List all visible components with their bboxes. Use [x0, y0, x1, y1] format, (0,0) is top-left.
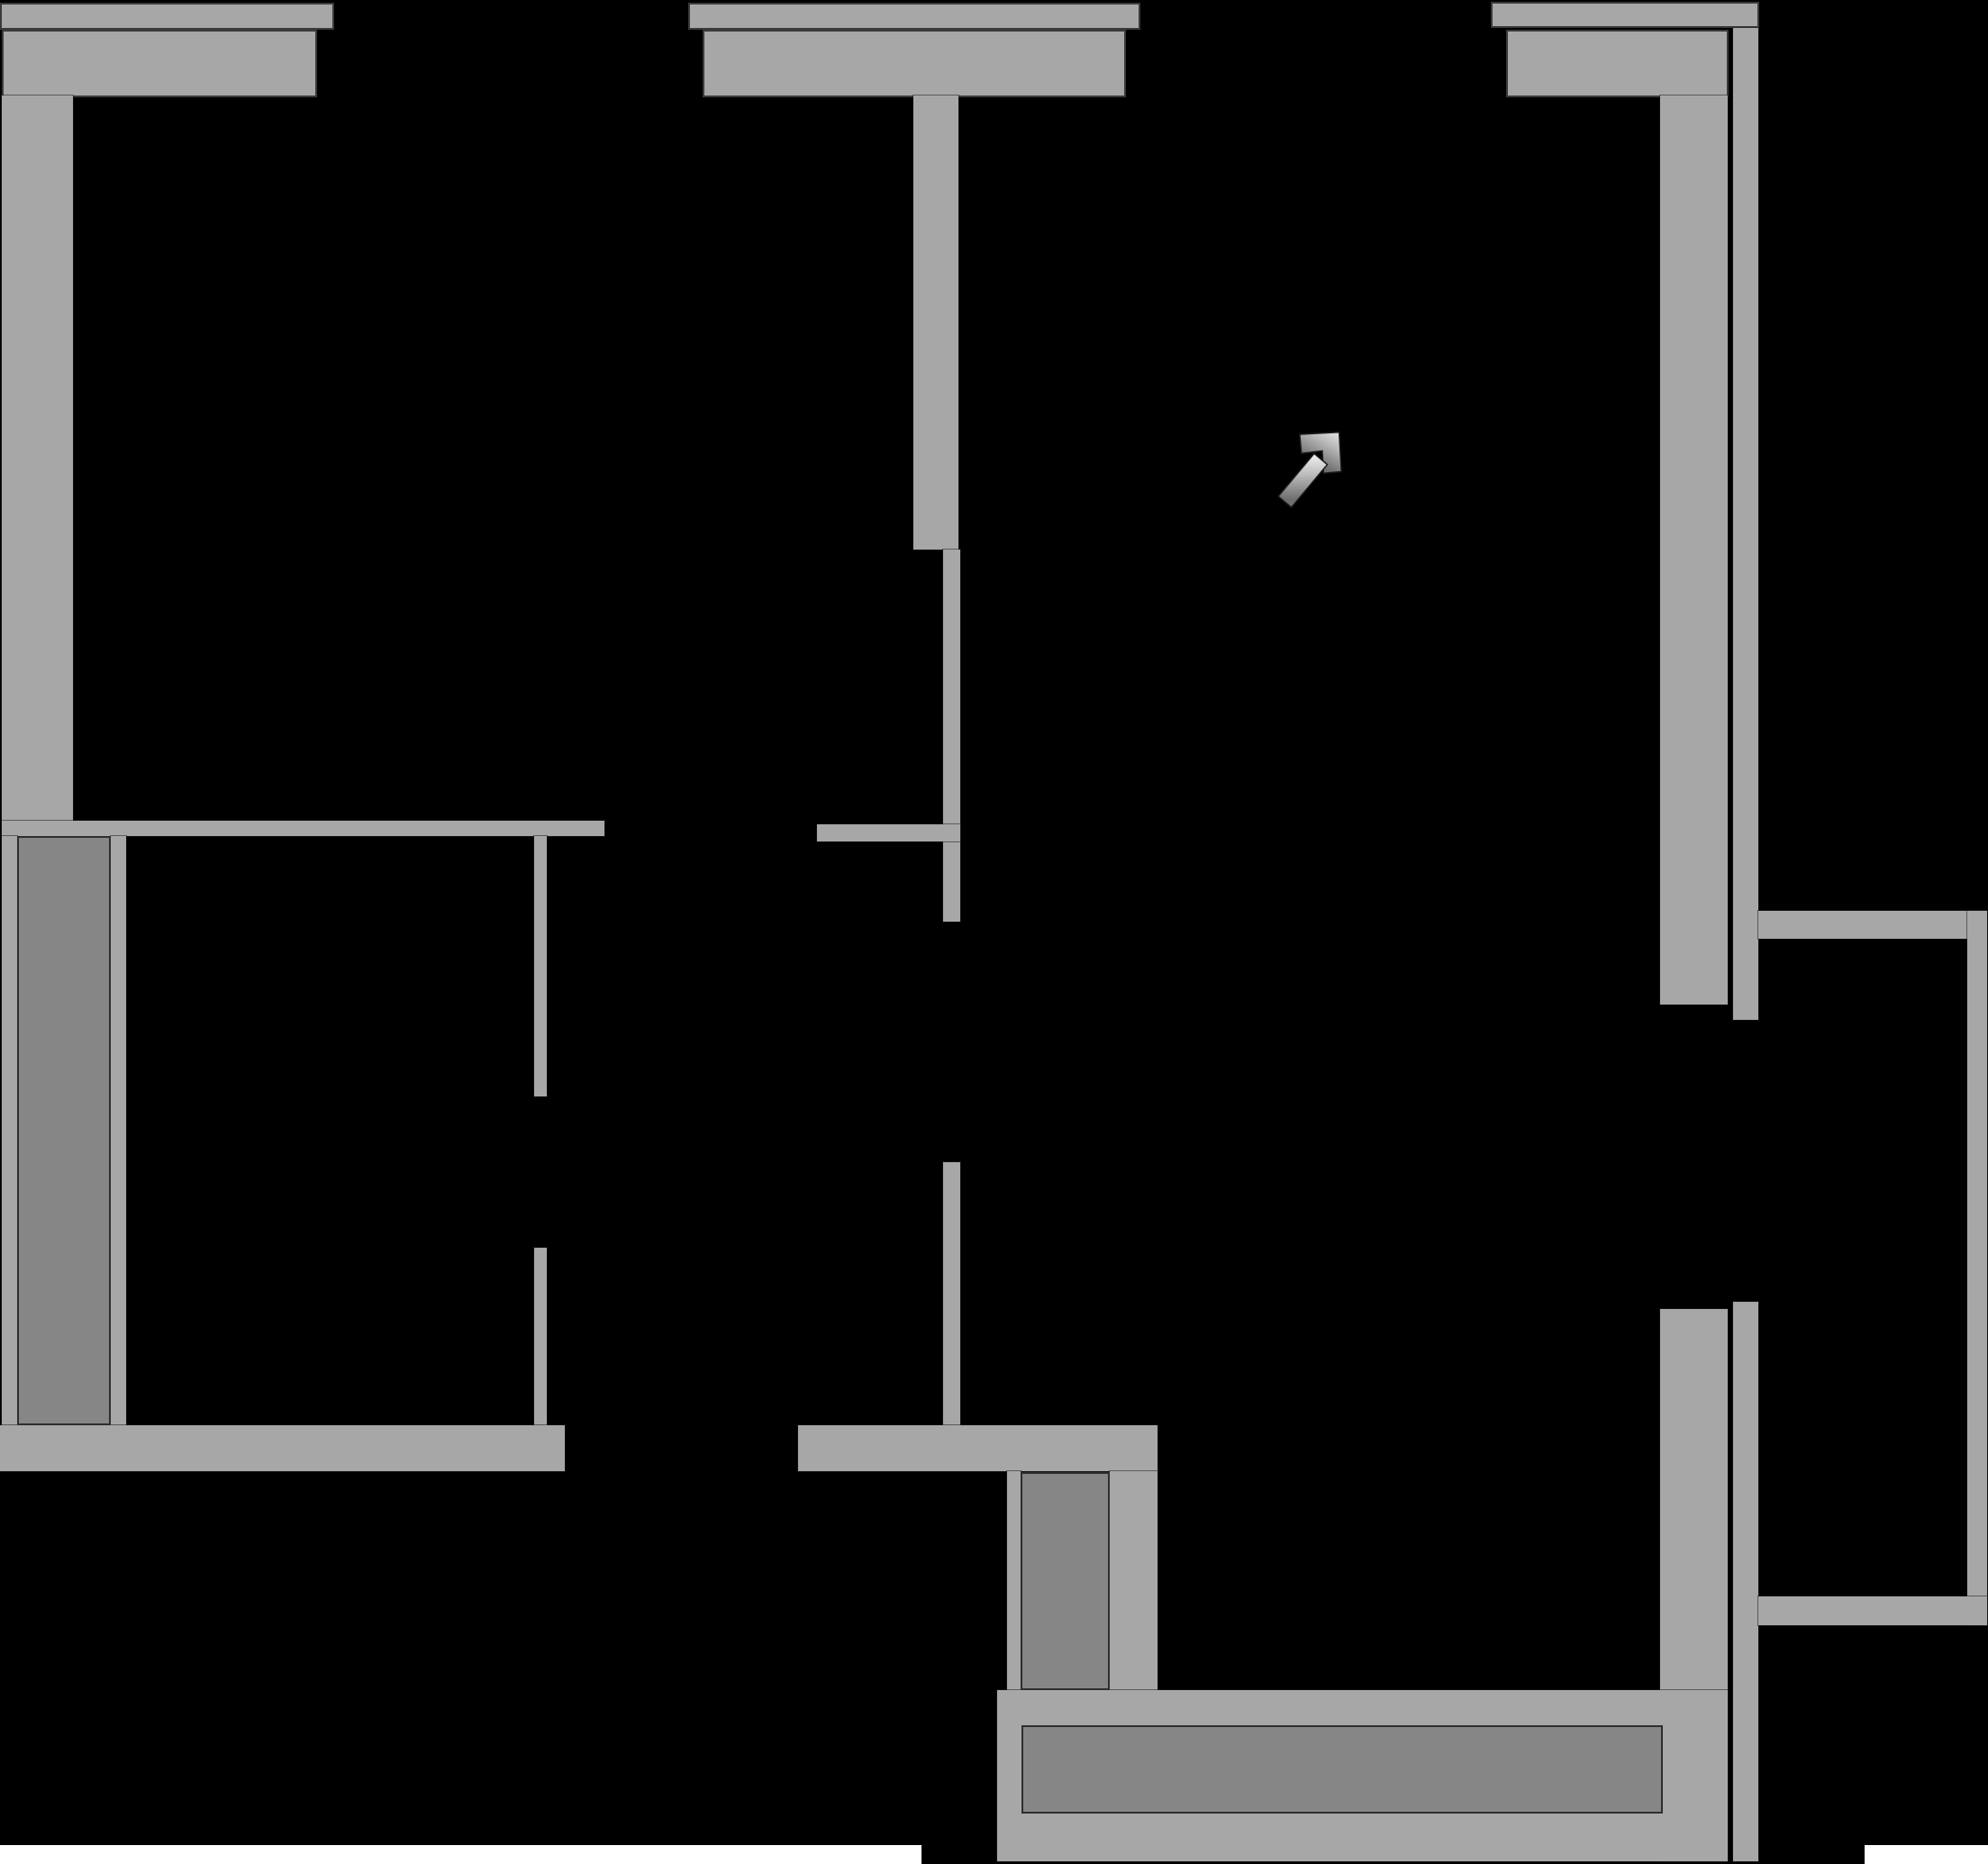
window-panel-left: [17, 836, 111, 1425]
wall-niche-left-sliver: [1007, 1471, 1021, 1690]
window-panel-long-bottom: [1021, 1725, 1663, 1814]
white-strip-bottom-left: [0, 1845, 921, 1864]
wall-block-top-left: [2, 30, 317, 97]
wall-balcony-right: [1967, 911, 1987, 1625]
cursor-arrow-shape: [1263, 416, 1357, 517]
wall-stem-mid-narrow: [943, 550, 960, 922]
wall-block-top-center: [703, 30, 1126, 97]
parapet-bar-top-center: [688, 3, 1140, 30]
wall-waist-center-branch: [817, 824, 960, 841]
cursor-arrow-icon: [1263, 416, 1357, 535]
wall-drop-upper: [534, 836, 547, 1096]
wall-right-strip-upper: [1733, 28, 1758, 1020]
wall-niche-right: [1110, 1471, 1157, 1690]
white-strip-bottom-right: [1865, 1845, 1988, 1864]
wall-left-outer-sliver: [2, 836, 17, 1425]
wall-bottom-center: [798, 1425, 1157, 1471]
wall-left-inner-strip: [111, 836, 126, 1425]
floor-plan-canvas: [0, 0, 1988, 1864]
wall-balcony-bottom: [1758, 1596, 1987, 1625]
wall-exterior-right-upper: [1660, 95, 1728, 1005]
wall-stem-upper-wide: [913, 95, 958, 550]
wall-block-top-right: [1506, 30, 1729, 97]
wall-exterior-left: [2, 95, 73, 821]
wall-balcony-top: [1758, 911, 1985, 939]
wall-drop-lower: [534, 1248, 547, 1425]
wall-right-strip-lower: [1733, 1302, 1758, 1861]
wall-waist-left: [2, 821, 604, 836]
parapet-bar-top-left: [0, 3, 334, 30]
window-panel-small-bottom: [1021, 1472, 1110, 1690]
parapet-bar-top-right: [1491, 2, 1759, 28]
wall-stem-lower: [943, 1162, 960, 1425]
wall-bottom-left: [0, 1425, 565, 1471]
